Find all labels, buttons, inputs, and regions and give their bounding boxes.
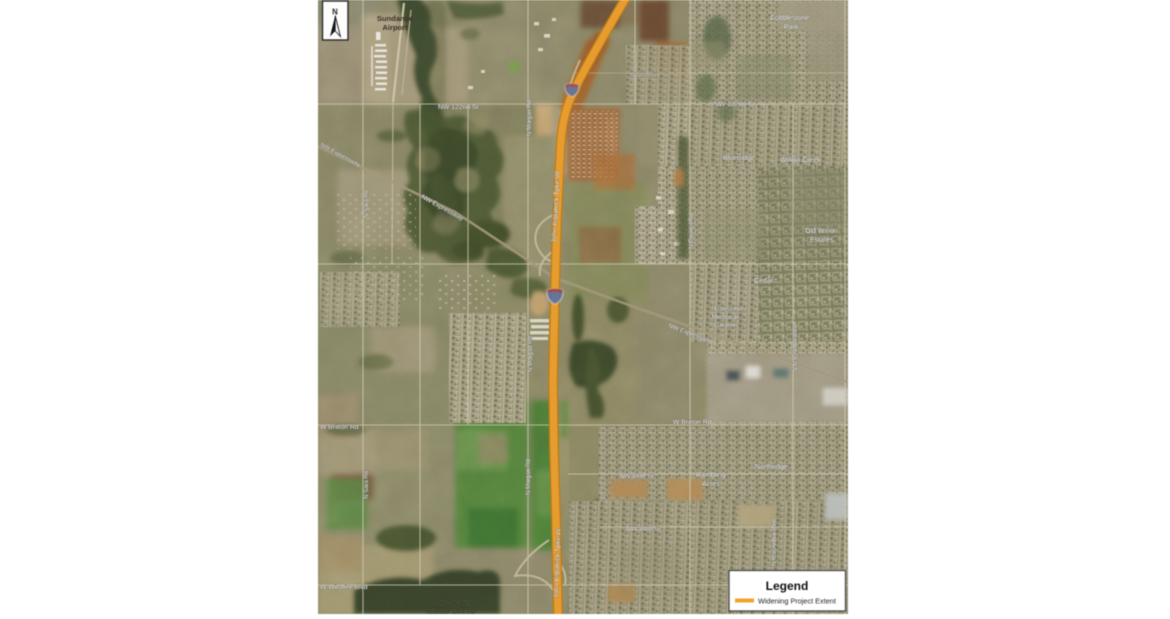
svg-text:NW 122nd St: NW 122nd St	[714, 101, 755, 108]
svg-text:N Morgan Rd: N Morgan Rd	[526, 459, 532, 495]
svg-text:Stinchcomb: Stinchcomb	[434, 598, 473, 607]
svg-text:Airport: Airport	[382, 23, 408, 32]
svg-text:NW 122nd St: NW 122nd St	[438, 104, 479, 111]
svg-text:Sundance: Sundance	[377, 14, 413, 23]
svg-text:N MacArthur Blvd: N MacArthur Blvd	[772, 519, 778, 566]
svg-text:Widening Project Extent: Widening Project Extent	[758, 597, 836, 606]
svg-text:Gardens: Gardens	[714, 322, 739, 329]
svg-text:N Morgan Rd: N Morgan Rd	[528, 336, 534, 372]
svg-text:Willow Creek: Willow Creek	[780, 157, 821, 164]
svg-text:Estates: Estates	[810, 237, 834, 244]
svg-text:Rambling: Rambling	[696, 472, 726, 479]
svg-text:N: N	[332, 8, 338, 17]
svg-text:N Sara Rd: N Sara Rd	[364, 471, 370, 499]
svg-text:Acres: Acres	[702, 481, 720, 488]
svg-text:Old Winon: Old Winon	[805, 228, 838, 235]
svg-text:Park: Park	[784, 24, 799, 31]
svg-text:N MacArthur Blvd: N MacArthur Blvd	[793, 325, 799, 372]
svg-text:Cobblestone: Cobblestone	[770, 15, 809, 22]
svg-text:Bluerridge: Bluerridge	[723, 155, 755, 162]
svg-text:NW 88th St: NW 88th St	[619, 473, 654, 480]
svg-text:W Wilshire Blvd: W Wilshire Blvd	[320, 584, 368, 591]
svg-text:Memorial: Memorial	[712, 314, 738, 321]
svg-text:NW 84th St: NW 84th St	[626, 526, 661, 533]
svg-text:N Council Rd: N Council Rd	[689, 214, 695, 249]
svg-text:W Britton Rd: W Britton Rd	[320, 424, 359, 431]
svg-text:N Sara Rd: N Sara Rd	[364, 190, 370, 218]
svg-text:Northridge: Northridge	[755, 464, 788, 471]
svg-text:NW 146th St: NW 146th St	[630, 72, 669, 79]
svg-text:Legend: Legend	[766, 579, 809, 593]
svg-text:Cedar: Cedar	[754, 278, 774, 285]
svg-text:Forest Hill: Forest Hill	[714, 306, 743, 313]
svg-text:W Britton Rd: W Britton Rd	[673, 419, 712, 426]
svg-text:N Morgan Rd: N Morgan Rd	[527, 100, 533, 136]
svg-text:Wildlife Refuge: Wildlife Refuge	[426, 608, 476, 614]
